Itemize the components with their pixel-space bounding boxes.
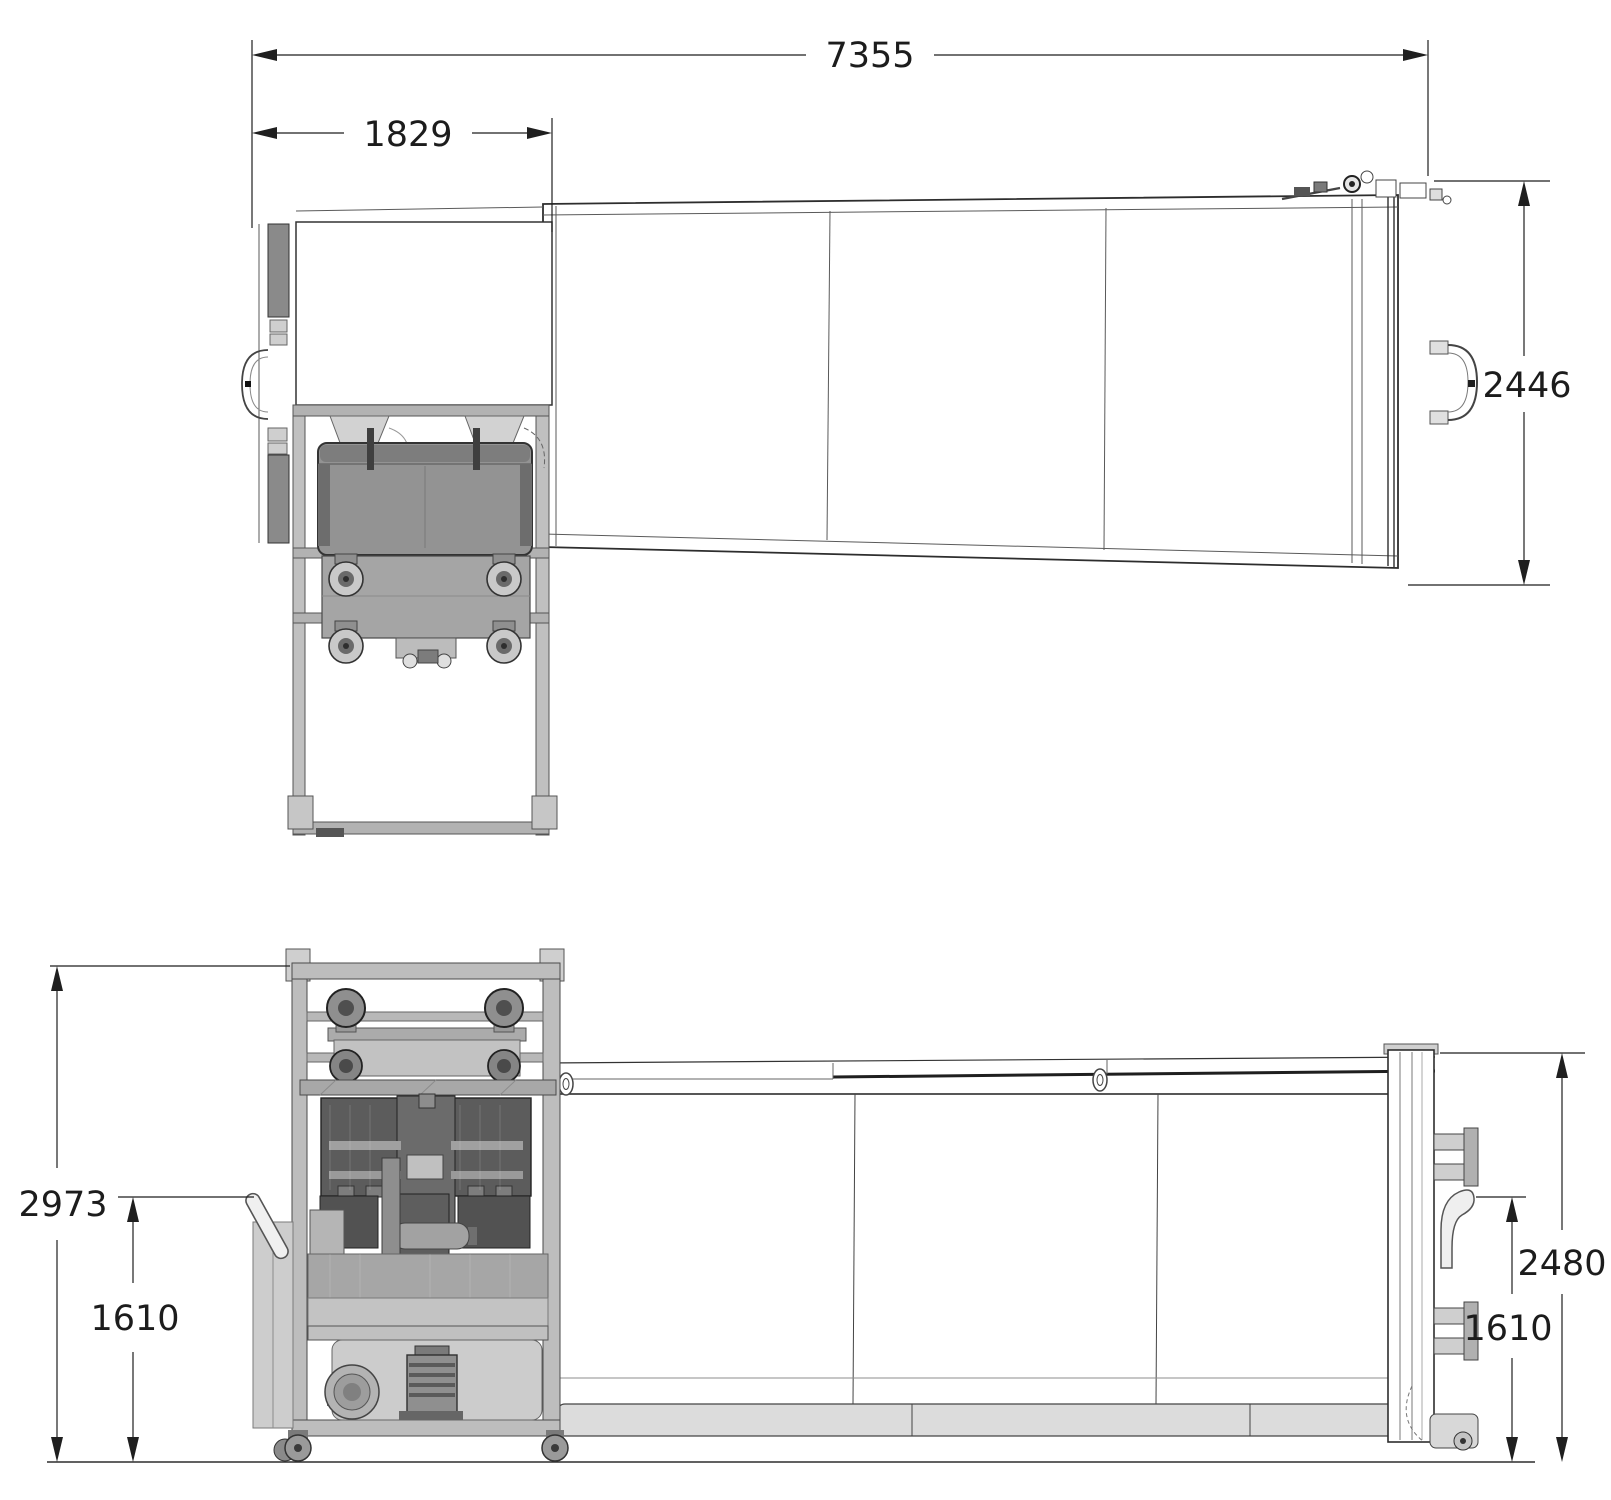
tow-bracket-plan	[396, 638, 456, 668]
lifting-eyelet	[1093, 1069, 1107, 1091]
dim-label-feed-unit-length: 1829	[363, 115, 452, 155]
dim-label-container-width: 2446	[1482, 366, 1571, 406]
dim-label-left-handle-height: 1610	[90, 1299, 179, 1339]
cover-panel-plan	[296, 222, 552, 405]
container-side	[545, 1057, 1435, 1436]
container-plan	[543, 195, 1398, 568]
caster-wheel	[327, 989, 365, 1032]
skid-rail	[557, 1404, 1433, 1436]
door-bottom-roller	[1430, 1414, 1478, 1450]
lifting-eyelet	[559, 1073, 573, 1095]
dim-feed-unit-length: 1829	[252, 115, 552, 232]
caster-wheel	[330, 1050, 362, 1082]
door-hook-handle	[1441, 1190, 1474, 1268]
rear-door-side	[1384, 1044, 1478, 1450]
hinge-bracket	[1434, 1128, 1478, 1186]
side-view: 2973 1610 2480 1610	[18, 949, 1606, 1462]
dim-left-handle-height: 1610	[90, 1197, 254, 1462]
caster-wheel	[488, 1050, 520, 1082]
feed-end-panels	[242, 224, 289, 543]
hydraulic-pump	[325, 1365, 379, 1419]
dim-label-right-hook-height: 1610	[1463, 1309, 1552, 1349]
technical-drawing-canvas: 7355 1829 2446	[0, 0, 1611, 1500]
inverted-bin	[300, 989, 556, 1095]
bin-lifter-plan	[242, 207, 557, 837]
dim-label-overall-length: 7355	[825, 36, 914, 76]
dim-label-container-height: 2480	[1517, 1244, 1606, 1284]
dim-label-overall-height: 2973	[18, 1185, 107, 1225]
dim-container-width: 2446	[1408, 181, 1572, 585]
mid-grid-band	[308, 1254, 548, 1298]
machine-wheel	[274, 1430, 311, 1461]
top-rail-edge	[833, 1071, 1435, 1077]
dim-overall-height: 2973	[18, 966, 290, 1462]
bin-lifter-side	[243, 949, 568, 1461]
caster-wheel	[485, 989, 523, 1032]
wheelie-bin-plan	[318, 428, 532, 555]
motor	[399, 1346, 463, 1420]
control-box	[310, 1210, 344, 1254]
top-view: 7355 1829 2446	[242, 36, 1572, 837]
dim-container-height: 2480	[1440, 1053, 1607, 1462]
